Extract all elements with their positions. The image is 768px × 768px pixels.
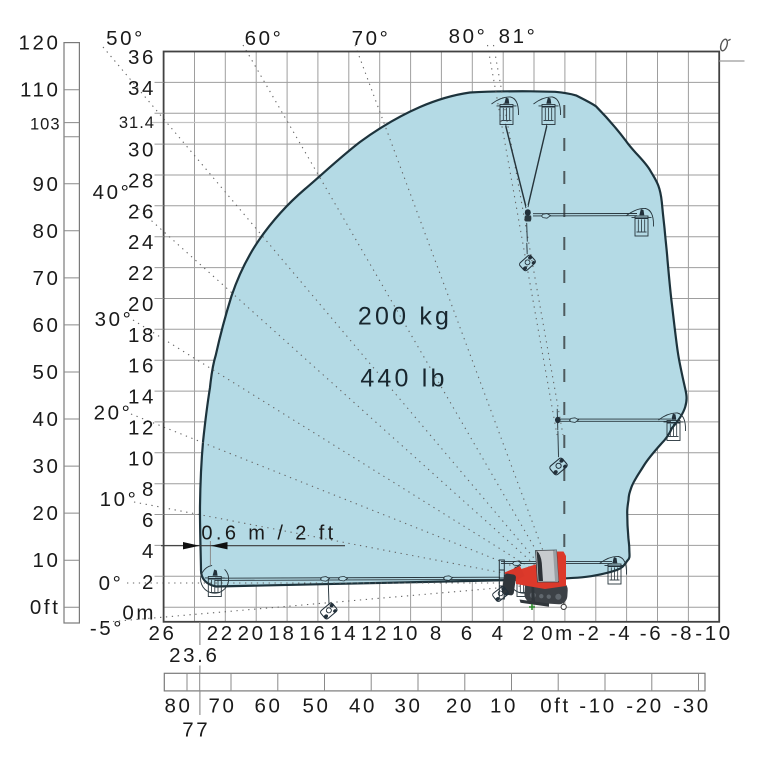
svg-text:34: 34 <box>128 77 156 100</box>
svg-text:40°: 40° <box>93 181 132 204</box>
svg-text:30: 30 <box>394 695 422 718</box>
svg-text:50: 50 <box>302 695 330 718</box>
svg-text:30: 30 <box>32 455 60 478</box>
svg-text:40: 40 <box>349 695 377 718</box>
svg-text:6: 6 <box>142 509 156 532</box>
svg-text:50: 50 <box>32 361 60 384</box>
svg-text:12: 12 <box>361 622 389 645</box>
svg-text:0.6 m / 2 ft: 0.6 m / 2 ft <box>201 523 336 545</box>
svg-text:81°: 81° <box>499 25 538 48</box>
svg-text:0ft: 0ft <box>30 596 61 619</box>
svg-text:0m: 0m <box>541 622 575 645</box>
svg-text:77: 77 <box>182 719 210 742</box>
svg-text:22: 22 <box>128 262 156 285</box>
svg-text:-20: -20 <box>626 695 663 718</box>
svg-text:4: 4 <box>142 540 156 563</box>
svg-text:70°: 70° <box>352 27 391 50</box>
svg-text:-4: -4 <box>609 622 632 645</box>
svg-text:6: 6 <box>461 622 475 645</box>
svg-text:440 lb: 440 lb <box>360 365 447 393</box>
svg-text:60: 60 <box>254 695 282 718</box>
svg-text:23.6: 23.6 <box>169 644 219 667</box>
svg-text:70: 70 <box>208 695 236 718</box>
svg-text:80: 80 <box>164 695 192 718</box>
svg-text:30°: 30° <box>95 308 134 331</box>
svg-text:-5°: -5° <box>90 617 124 640</box>
svg-text:16: 16 <box>299 622 327 645</box>
svg-text:10: 10 <box>32 549 60 572</box>
svg-text:18: 18 <box>268 622 296 645</box>
svg-text:-8: -8 <box>671 622 694 645</box>
svg-text:20: 20 <box>446 695 474 718</box>
svg-text:-10: -10 <box>579 695 616 718</box>
svg-text:22: 22 <box>207 622 235 645</box>
svg-text:0ft: 0ft <box>540 695 571 718</box>
svg-text:60: 60 <box>32 314 60 337</box>
svg-text:8: 8 <box>142 478 156 501</box>
svg-text:26: 26 <box>128 200 156 223</box>
svg-text:103: 103 <box>30 116 61 134</box>
svg-text:120: 120 <box>18 32 60 55</box>
svg-text:10: 10 <box>392 622 420 645</box>
svg-text:26: 26 <box>148 622 176 645</box>
svg-text:-2: -2 <box>578 622 601 645</box>
svg-text:10: 10 <box>490 695 518 718</box>
svg-text:-6: -6 <box>640 622 663 645</box>
svg-text:20: 20 <box>238 622 266 645</box>
svg-text:-10: -10 <box>695 622 732 645</box>
svg-text:110: 110 <box>20 79 60 102</box>
svg-text:-30: -30 <box>673 695 710 718</box>
svg-text:24: 24 <box>128 231 156 254</box>
svg-text:14: 14 <box>330 622 358 645</box>
svg-text:80°: 80° <box>449 25 488 48</box>
svg-text:0°: 0° <box>99 572 124 595</box>
svg-text:10: 10 <box>128 447 156 470</box>
svg-text:10°: 10° <box>100 488 139 511</box>
svg-text:28: 28 <box>128 170 156 193</box>
svg-text:8: 8 <box>430 622 444 645</box>
svg-text:20: 20 <box>32 502 60 525</box>
svg-text:4: 4 <box>492 622 506 645</box>
svg-text:2: 2 <box>522 622 536 645</box>
svg-text:80: 80 <box>32 220 60 243</box>
svg-text:60°: 60° <box>245 27 284 50</box>
svg-text:2: 2 <box>142 571 156 594</box>
svg-text:16: 16 <box>128 355 156 378</box>
svg-text:20°: 20° <box>94 402 133 425</box>
svg-text:90: 90 <box>32 173 60 196</box>
svg-text:70: 70 <box>32 267 60 290</box>
svg-text:50°: 50° <box>106 27 145 50</box>
svg-text:40: 40 <box>32 408 60 431</box>
svg-text:200 kg: 200 kg <box>358 303 452 331</box>
svg-text:31.4: 31.4 <box>119 114 155 132</box>
svg-text:30: 30 <box>128 139 156 162</box>
